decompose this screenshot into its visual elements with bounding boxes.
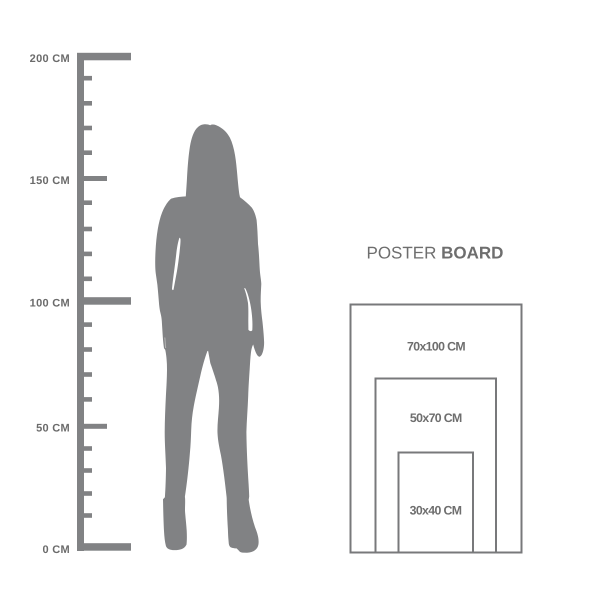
svg-text:150 CM: 150 CM — [30, 175, 70, 187]
svg-text:50x70 CM: 50x70 CM — [410, 411, 462, 425]
svg-text:70x100 CM: 70x100 CM — [407, 340, 465, 354]
svg-text:POSTER BOARD: POSTER BOARD — [367, 244, 504, 263]
svg-text:200 CM: 200 CM — [30, 53, 70, 65]
svg-text:50 CM: 50 CM — [36, 423, 70, 435]
svg-text:0 CM: 0 CM — [43, 544, 70, 556]
svg-text:100 CM: 100 CM — [30, 297, 70, 309]
svg-text:30x40 CM: 30x40 CM — [410, 504, 462, 518]
